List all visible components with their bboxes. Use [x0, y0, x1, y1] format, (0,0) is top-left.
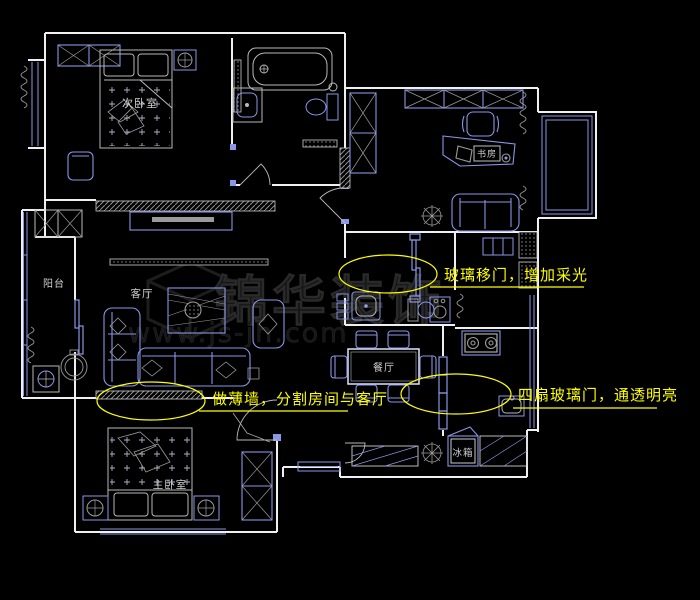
floor-plan-svg: 锦华装饰 www.js-jh.com: [0, 0, 700, 600]
label-study: 书房: [477, 148, 497, 160]
living-curtain-band: [110, 259, 268, 265]
label-living-room: 客厅: [131, 287, 154, 300]
label-dining-room: 餐厅: [373, 361, 395, 374]
plant: [421, 205, 443, 227]
label-secondary-bedroom: 次卧室: [122, 96, 158, 110]
label-master-bedroom: 主卧室: [153, 478, 188, 491]
plant-kitchen: [421, 442, 443, 464]
thin-wall-bottom: [96, 391, 202, 399]
label-balcony: 阳台: [43, 277, 65, 290]
right-window-box-1: [519, 232, 537, 258]
annotation-text-3: 四扇玻璃门，通透明亮: [518, 386, 678, 404]
thin-wall-top: [96, 201, 275, 211]
annotation-text-1: 玻璃移门，增加采光: [444, 266, 588, 284]
watermark-url-text: www.js-jh.com: [128, 318, 349, 349]
label-fridge: 冰箱: [452, 447, 473, 459]
bath-threshold: [303, 140, 337, 147]
study-wall-hatch: [340, 148, 350, 188]
floor-plan-canvas: 锦华装饰 www.js-jh.com: [0, 0, 700, 600]
annotation-text-2: 做薄墙，分割房间与客厅: [212, 390, 388, 408]
